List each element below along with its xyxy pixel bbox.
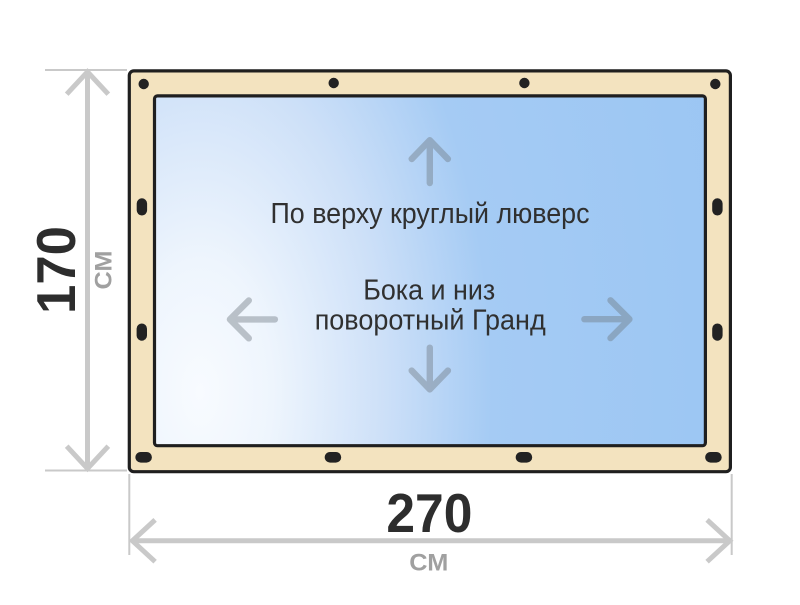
svg-text:СМ: СМ <box>409 549 448 576</box>
svg-text:По верху круглый люверс: По верху круглый люверс <box>271 198 590 230</box>
svg-text:Бока и низ: Бока и низ <box>363 275 495 307</box>
svg-text:поворотный Гранд: поворотный Гранд <box>315 305 546 337</box>
svg-text:270: 270 <box>386 482 472 544</box>
svg-text:170: 170 <box>26 226 87 314</box>
svg-text:СМ: СМ <box>90 251 117 290</box>
